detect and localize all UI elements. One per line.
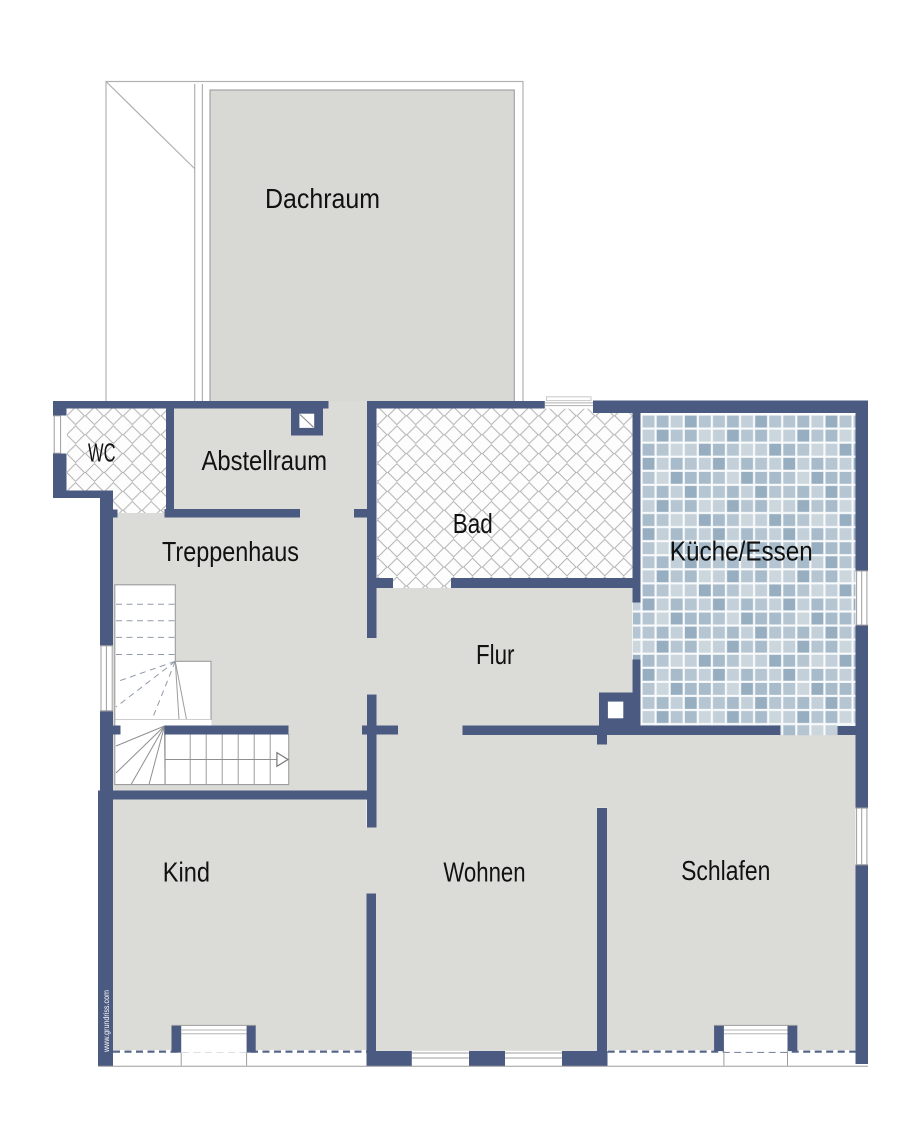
svg-text:Bad: Bad [453,508,493,539]
svg-text:www.grundriss.com: www.grundriss.com [101,990,111,1053]
svg-text:Schlafen: Schlafen [681,855,770,886]
svg-text:Treppenhaus: Treppenhaus [162,536,299,567]
svg-text:Wohnen: Wohnen [443,857,525,888]
svg-text:Dachraum: Dachraum [265,183,380,214]
svg-text:Flur: Flur [476,639,515,670]
svg-text:Abstellraum: Abstellraum [202,445,328,476]
svg-text:Kind: Kind [163,857,210,888]
svg-text:WC: WC [88,438,116,468]
svg-text:Küche/Essen: Küche/Essen [670,536,813,567]
